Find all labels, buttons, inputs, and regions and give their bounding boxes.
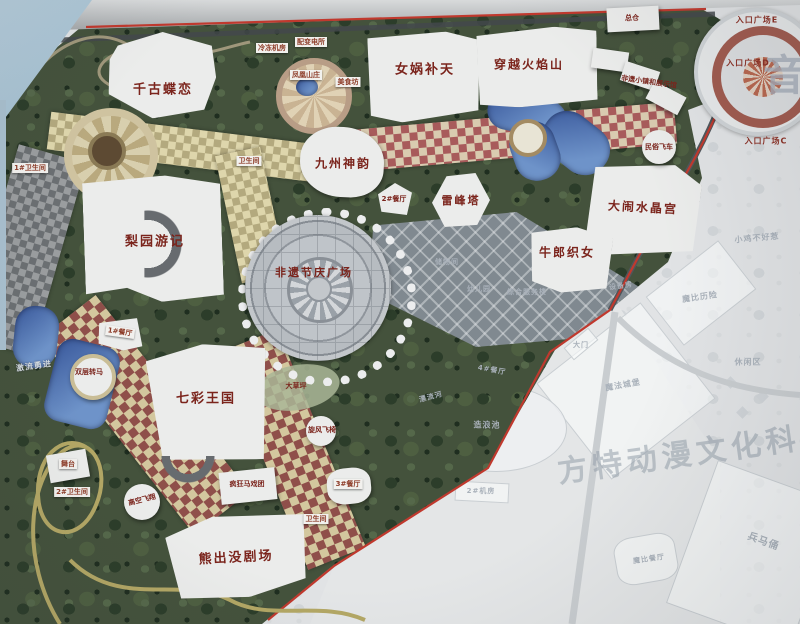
attraction-nvwabutian: 女娲补天 — [395, 59, 455, 78]
facility-chiller: 冷冻机房 — [256, 43, 288, 53]
adjacent-storage: 储物间 — [435, 257, 459, 267]
facility-restroom: 卫生间 — [304, 514, 329, 524]
attraction-qiangudielian: 千古蝶恋 — [133, 79, 193, 98]
ride-folk-car: 民俗飞车 — [645, 142, 673, 152]
facility-restroom2: 2#卫生间 — [54, 487, 90, 497]
venue-lawn: 大草坪 — [286, 381, 307, 391]
facility-warehouse: 总仓 — [625, 13, 639, 23]
facility-restaurant3: 3#餐厅 — [334, 479, 363, 489]
attraction-jiuzhoushenyun: 九州神韵 — [315, 155, 371, 172]
board-edge — [0, 100, 6, 350]
attraction-liyuanyouji: 梨园游记 — [125, 231, 185, 250]
attraction-xiongchumo: 熊出没剧场 — [198, 545, 274, 568]
attraction-niulangzhinv: 牛郎织女 — [539, 244, 595, 261]
adjacent-gate: 大门 — [573, 340, 589, 350]
venue-stage: 舞台 — [59, 459, 77, 469]
attraction-huoyanshan: 穿越火焰山 — [494, 56, 564, 73]
park-map-photo: 千古蝶恋 女娲补天 穿越火焰山 九州神韵 雷峰塔 大闹水晶宫 牛郎织女 梨园游记… — [0, 0, 800, 624]
ride-carousel-shape — [70, 354, 116, 400]
attraction-qicaiwangguo: 七彩王国 — [176, 388, 236, 407]
attraction-feiyi-plaza: 非遗节庆广场 — [275, 264, 353, 280]
ride-carousel: 双层转马 — [75, 367, 103, 377]
faded-watermark-character: 音 — [763, 42, 800, 103]
ride-whirlwind: 旋风飞椅 — [308, 425, 336, 435]
facility-restaurant2: 2#餐厅 — [382, 194, 407, 204]
adjacent-service-building: 综合服务楼 — [507, 287, 547, 297]
adjacent-wave-pool: 造浪池 — [474, 420, 501, 431]
attraction-leifengta: 雷峰塔 — [442, 192, 481, 208]
facility-restroom1: 1#卫生间 — [12, 163, 48, 173]
facility-substation: 配变电所 — [295, 37, 327, 47]
facility-food-court: 美食坊 — [336, 77, 361, 87]
entrance-plaza-c: 入口广场C — [745, 136, 788, 147]
facility-phoenix-villa: 凤凰山庄 — [290, 70, 322, 80]
adjacent-leisure-area: 休闲区 — [735, 357, 762, 368]
entrance-plaza-d: 入口广场D — [726, 58, 770, 69]
facility-restroom: 卫生间 — [237, 156, 262, 166]
adjacent-kindergarten: 幼儿园 — [467, 284, 491, 294]
adjacent-pumproom: 2#机房 — [467, 486, 496, 496]
entrance-plaza-e: 入口广场E — [736, 15, 778, 26]
ride-circus: 疯狂马戏团 — [230, 479, 265, 489]
attraction-shuijinggong: 大闹水晶宫 — [608, 197, 679, 218]
